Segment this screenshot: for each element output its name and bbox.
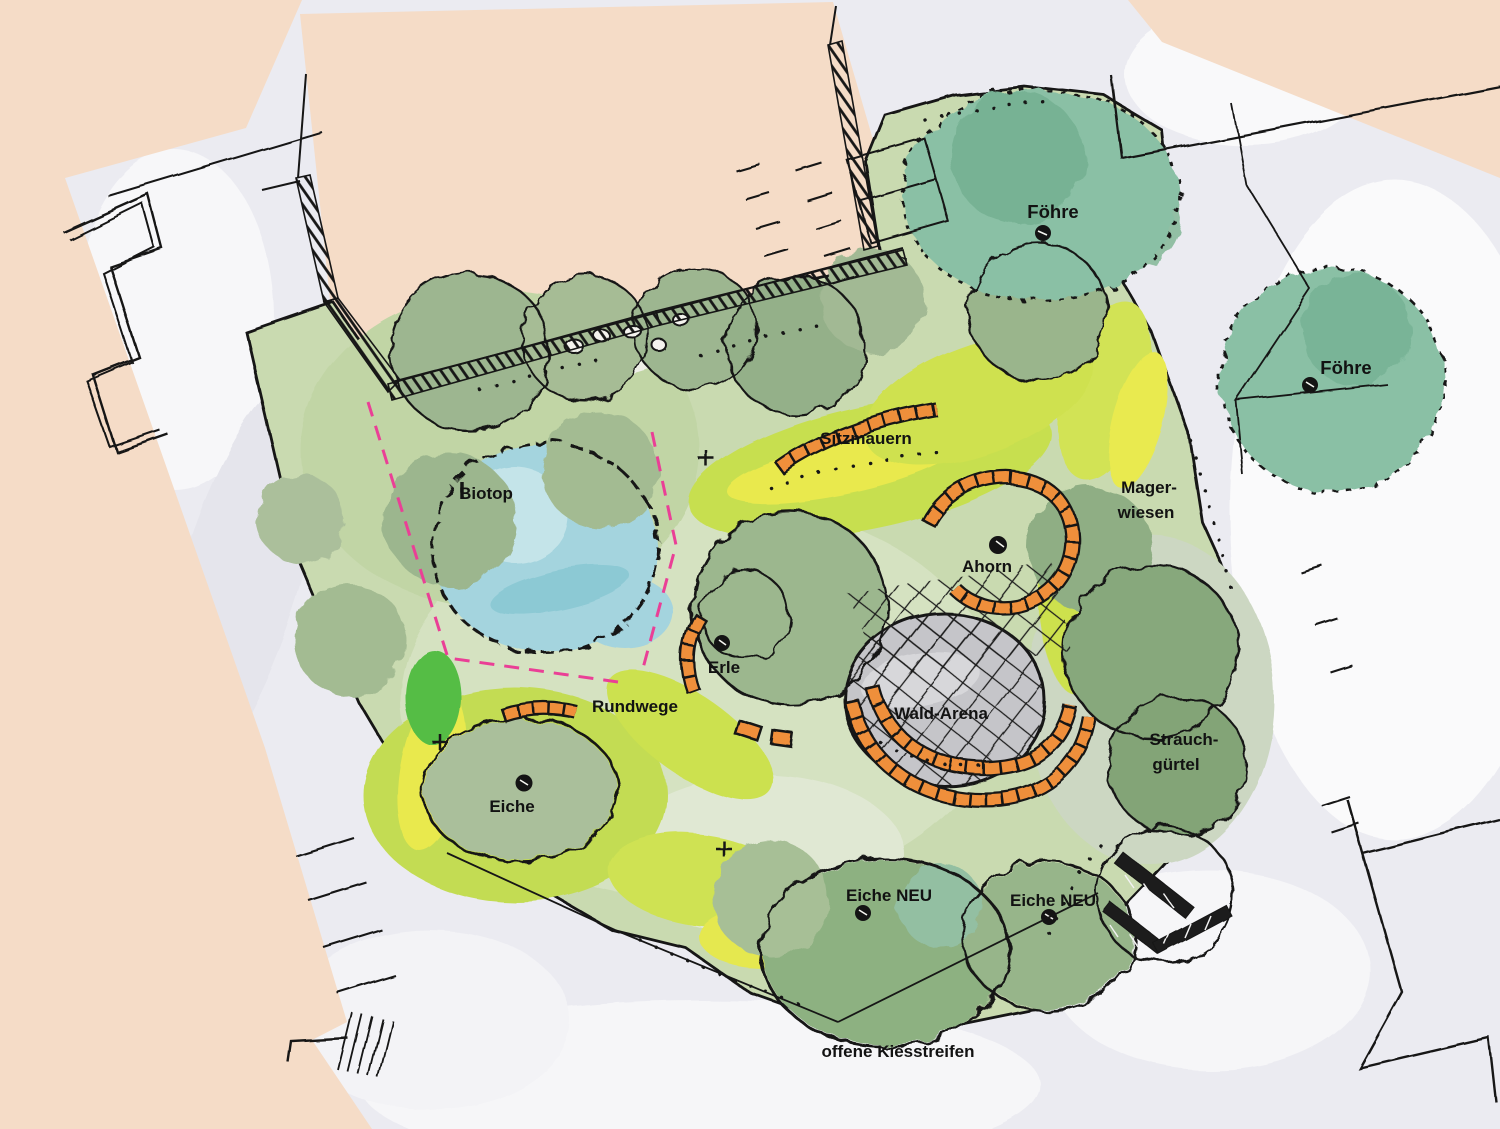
site-plan-page: Föhre Föhre Sitzmauern Biotop Mager- wie… [0, 0, 1500, 1129]
label-eiche: Eiche [489, 797, 534, 816]
label-eiche-neu-east: Eiche NEU [1010, 891, 1096, 910]
label-foehre-top: Föhre [1027, 201, 1078, 222]
site-plan-svg: Föhre Föhre Sitzmauern Biotop Mager- wie… [0, 0, 1500, 1129]
trunk-ahorn [989, 536, 1007, 554]
label-strauchguertel-2: gürtel [1152, 755, 1199, 774]
label-erle: Erle [708, 658, 740, 677]
label-sitzmauern: Sitzmauern [820, 429, 912, 448]
seat-wall-eiche [503, 709, 577, 716]
label-ahorn: Ahorn [962, 557, 1012, 576]
label-wald-arena: Wald-Arena [894, 704, 988, 723]
label-rundwege: Rundwege [592, 697, 678, 716]
vivid-green-patch [405, 649, 461, 745]
label-offene-kiesstreifen: offene Kiesstreifen [821, 1042, 974, 1061]
label-strauchguertel-1: Strauch- [1150, 730, 1219, 749]
label-magerwiesen-2: wiesen [1117, 503, 1175, 522]
label-eiche-neu-west: Eiche NEU [846, 886, 932, 905]
canopy-eiche-neu-east [964, 864, 1132, 1008]
label-magerwiesen-1: Mager- [1121, 478, 1177, 497]
wall-stone-2 [771, 731, 793, 747]
label-foehre-right: Föhre [1320, 357, 1371, 378]
label-biotop: Biotop [459, 484, 513, 503]
